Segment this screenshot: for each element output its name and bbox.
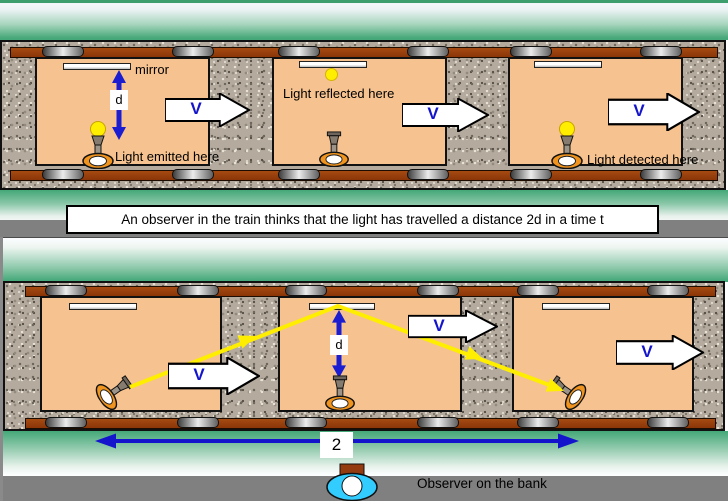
rail-bottom	[10, 170, 718, 181]
train-wheel-icon	[407, 169, 449, 180]
train-wheel-icon	[278, 169, 320, 180]
velocity-label: V	[412, 315, 466, 335]
train-panel-top: mirror d Light emitted here Light reflec…	[0, 40, 726, 190]
velocity-label: V	[406, 104, 460, 124]
velocity-label: V	[172, 365, 226, 385]
train-wheel-icon	[278, 46, 320, 57]
train-wheel-icon	[640, 46, 682, 57]
light-detected-label: Light detected here	[587, 152, 698, 167]
sky-band-top	[0, 0, 728, 40]
train-wheel-icon	[407, 46, 449, 57]
light-flash-icon	[325, 68, 338, 81]
train-wheel-icon	[510, 169, 552, 180]
train-wheel-icon	[640, 169, 682, 180]
mirror-label: mirror	[135, 62, 169, 77]
velocity-label: V	[169, 99, 223, 119]
mirror-icon	[63, 63, 131, 70]
train-wheel-icon	[172, 46, 214, 57]
caption-box: An observer in the train thinks that the…	[66, 205, 659, 234]
signal-lamp-icon	[549, 121, 585, 169]
velocity-label: V	[612, 101, 666, 121]
velocity-block-arrow-icon: V	[168, 357, 260, 395]
observer-eye-icon	[325, 463, 379, 501]
train-wheel-icon	[42, 46, 84, 57]
mirror-icon	[534, 61, 602, 68]
bank-distance-label: 2	[320, 432, 353, 458]
signal-lamp-icon	[80, 121, 116, 169]
light-reflected-label: Light reflected here	[283, 86, 394, 101]
train-wheel-icon	[42, 169, 84, 180]
train-panel-bottom: d	[3, 281, 725, 431]
signal-lamp-icon	[316, 131, 352, 167]
mirror-icon	[299, 61, 367, 68]
train-wheel-icon	[510, 46, 552, 57]
distance-d-label: d	[110, 90, 128, 110]
velocity-block-arrow-icon: V	[402, 98, 489, 132]
velocity-block-arrow-icon: V	[408, 310, 498, 343]
light-emitted-label: Light emitted here	[115, 149, 219, 164]
velocity-label: V	[620, 341, 674, 361]
train-wheel-icon	[172, 169, 214, 180]
velocity-block-arrow-icon: V	[616, 335, 704, 370]
sky-band-lower	[0, 238, 728, 282]
relativity-light-clock-diagram: mirror d Light emitted here Light reflec…	[0, 0, 728, 501]
observer-label: Observer on the bank	[417, 476, 547, 491]
velocity-block-arrow-icon: V	[608, 93, 700, 131]
velocity-block-arrow-icon: V	[165, 93, 250, 127]
top-edge-line	[0, 0, 728, 3]
